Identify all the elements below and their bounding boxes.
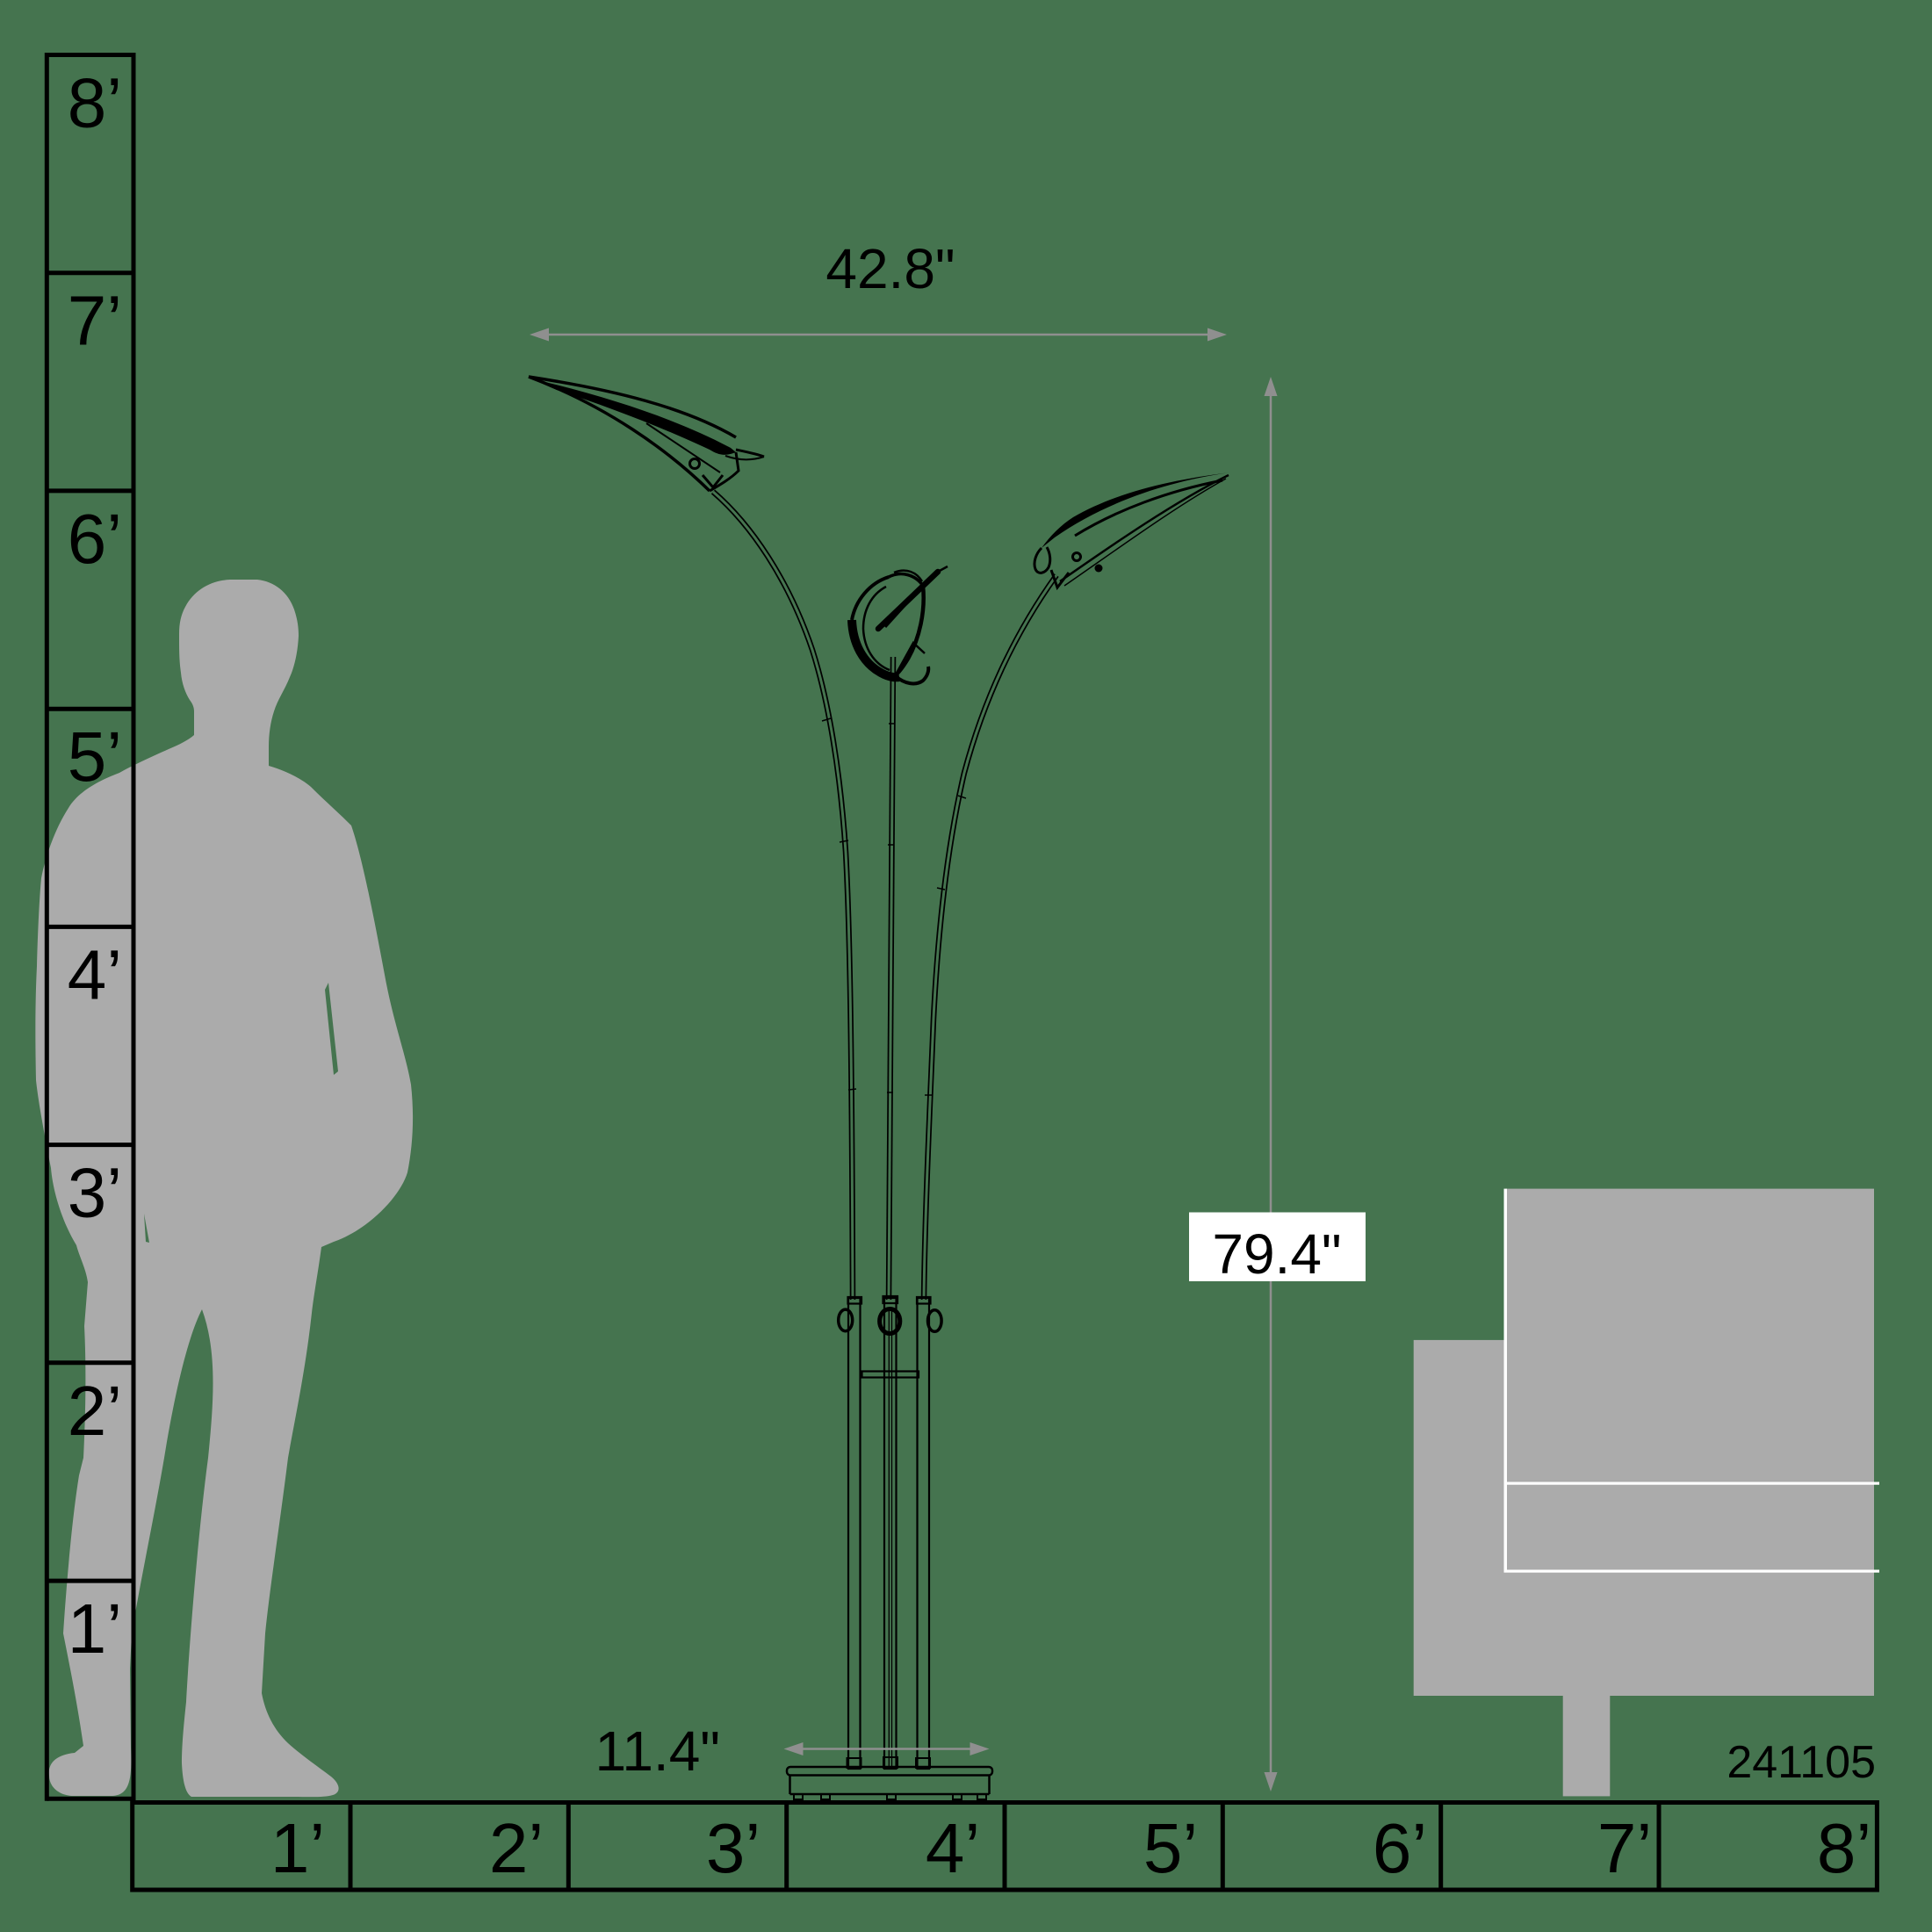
svg-text:1’: 1’ bbox=[68, 1590, 122, 1668]
svg-text:6’: 6’ bbox=[1373, 1809, 1427, 1887]
svg-text:7’: 7’ bbox=[68, 282, 122, 360]
svg-text:4’: 4’ bbox=[926, 1809, 980, 1887]
svg-text:79.4": 79.4" bbox=[1212, 1222, 1341, 1286]
svg-text:8’: 8’ bbox=[1817, 1809, 1871, 1887]
svg-text:8’: 8’ bbox=[68, 64, 122, 142]
svg-text:2’: 2’ bbox=[68, 1372, 122, 1450]
svg-text:5’: 5’ bbox=[1143, 1809, 1198, 1887]
svg-text:4’: 4’ bbox=[68, 935, 122, 1013]
svg-text:5’: 5’ bbox=[68, 717, 122, 796]
svg-text:1’: 1’ bbox=[270, 1809, 325, 1887]
svg-text:6’: 6’ bbox=[68, 500, 122, 578]
svg-text:2’: 2’ bbox=[489, 1809, 544, 1887]
svg-text:241105: 241105 bbox=[1727, 1737, 1876, 1788]
svg-text:7’: 7’ bbox=[1597, 1809, 1652, 1887]
svg-text:11.4": 11.4" bbox=[595, 1719, 720, 1783]
svg-text:42.8": 42.8" bbox=[825, 237, 955, 300]
svg-text:3’: 3’ bbox=[68, 1154, 122, 1232]
svg-text:3’: 3’ bbox=[706, 1809, 761, 1887]
